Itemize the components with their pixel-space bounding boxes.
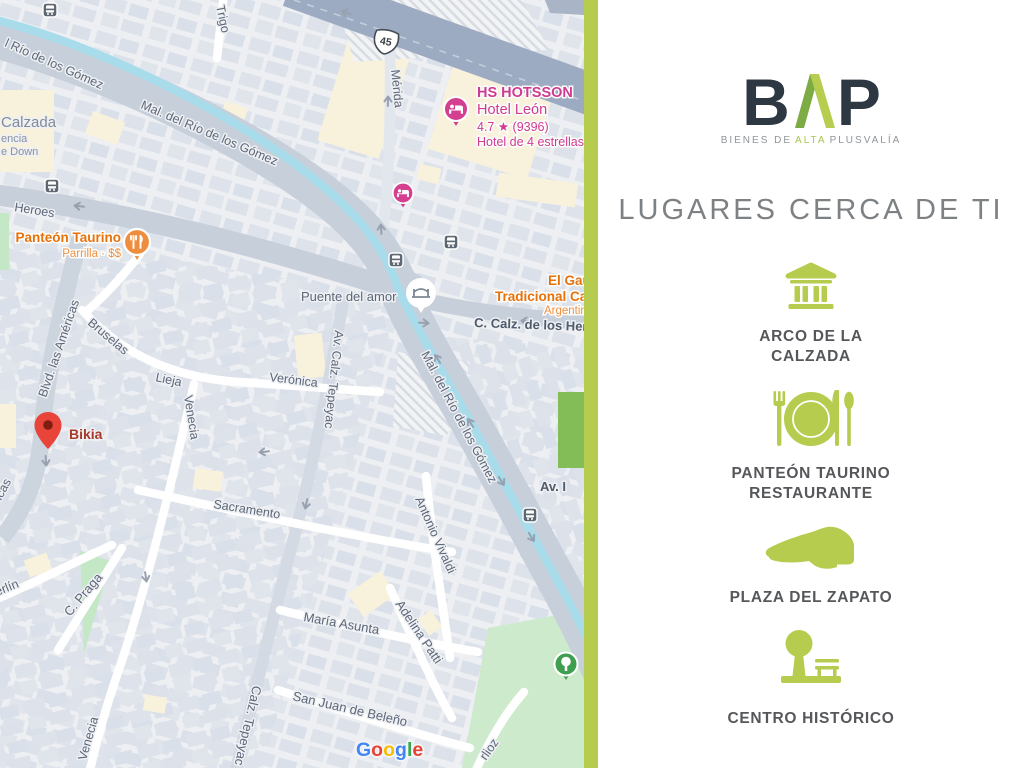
logo-letter-p: P: [837, 76, 880, 128]
place-arco-de-la-calzada: ARCO DE LA CALZADA: [598, 261, 1024, 367]
place-label: CENTRO HISTÓRICO: [598, 709, 1024, 729]
place-label: ARCO DE LA CALZADA: [598, 327, 1024, 367]
map-panel[interactable]: l Río de los Gómez Mal. del Río de los G…: [0, 0, 584, 768]
info-panel: B P BIENES DEALTAPLUSVALÍA LUGARES CERCA…: [598, 0, 1024, 768]
poi-hotel-name[interactable]: HS HOTSSON: [477, 85, 573, 101]
place-panteon-taurino: PANTEÓN TAURINO RESTAURANTE: [598, 386, 1024, 504]
google-logo[interactable]: Google: [356, 739, 423, 761]
place-label: PLAZA DEL ZAPATO: [598, 588, 1024, 608]
page-title: LUGARES CERCA DE TI: [598, 194, 1024, 227]
place-plaza-del-zapato: PLAZA DEL ZAPATO: [598, 524, 1024, 608]
svg-text:45: 45: [379, 35, 393, 49]
logo-letter-b: B: [742, 76, 789, 128]
divider-bar: [584, 0, 598, 768]
bap-logo: B P BIENES DEALTAPLUSVALÍA: [598, 70, 1024, 146]
area-label-calzada: Calzada: [1, 114, 57, 131]
shoe-icon: [761, 526, 861, 572]
poi-hotel-subname[interactable]: Hotel León: [477, 102, 547, 118]
street-label-av-fragment: Av. I: [540, 479, 566, 494]
bus-stop-icon[interactable]: [523, 508, 537, 522]
restaurant-icon: [765, 388, 857, 448]
bus-stop-icon[interactable]: [389, 253, 403, 267]
poi-panteon-detail: Parrilla · $$: [62, 248, 121, 260]
area-label-e-down: e Down: [1, 146, 38, 158]
bus-stop-icon[interactable]: [45, 179, 59, 193]
map-svg[interactable]: l Río de los Gómez Mal. del Río de los G…: [0, 0, 584, 768]
logo-caret-icon: [791, 74, 835, 128]
places-list: ARCO DE LA CALZADA: [598, 261, 1024, 729]
bus-stop-icon[interactable]: [43, 3, 57, 17]
logo-tagline: BIENES DEALTAPLUSVALÍA: [598, 135, 1024, 146]
poi-gaucho-line1[interactable]: El Gau: [548, 273, 584, 288]
park-icon: [778, 629, 844, 687]
street-label-puente-del-amor: Puente del amor: [301, 289, 397, 304]
bus-stop-icon[interactable]: [444, 235, 458, 249]
monument-icon: [783, 261, 839, 311]
poi-gaucho-line3: Argentina: [544, 305, 584, 317]
poi-hotel-category: Hotel de 4 estrellas: [477, 135, 584, 149]
poi-panteon-name[interactable]: Panteón Taurino: [15, 230, 121, 245]
place-label: PANTEÓN TAURINO RESTAURANTE: [598, 464, 1024, 504]
place-centro-historico: CENTRO HISTÓRICO: [598, 627, 1024, 729]
area-label-encia: encia: [1, 133, 28, 145]
poi-hotel-rating: 4.7 ★ (9396): [477, 120, 549, 134]
poi-bikia-label[interactable]: Bikia: [69, 426, 103, 442]
poi-gaucho-line2[interactable]: Tradicional Calz: [495, 289, 584, 304]
